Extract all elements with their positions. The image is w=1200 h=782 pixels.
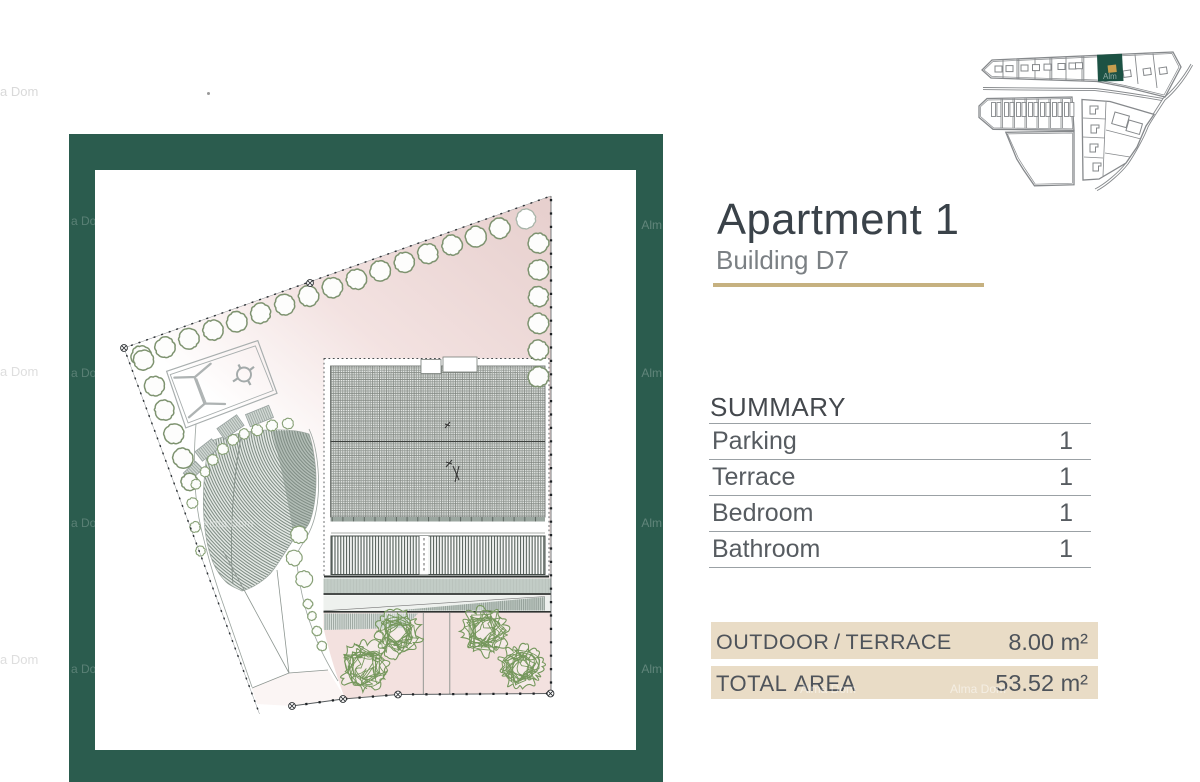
svg-text:Alm: Alm — [1103, 72, 1117, 81]
svg-text:Alma Dom: Alma Dom — [350, 365, 394, 376]
svg-text:Alma Dom: Alma Dom — [202, 518, 253, 530]
svg-text:Alma Dom: Alma Dom — [492, 365, 536, 376]
